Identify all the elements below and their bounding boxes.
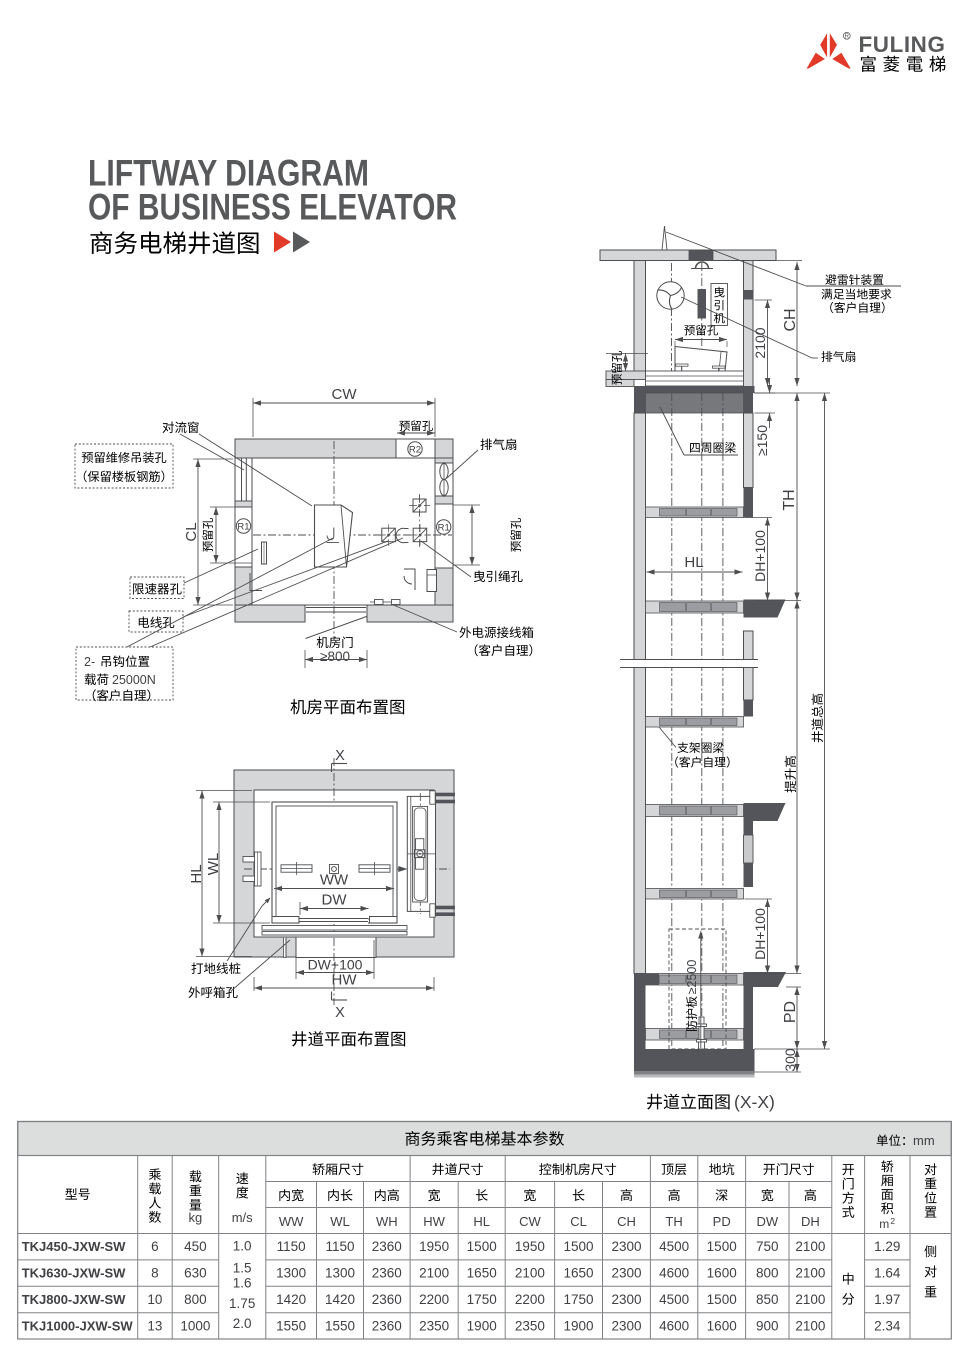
svg-text:300: 300 bbox=[782, 1048, 798, 1072]
svg-text:HL: HL bbox=[473, 1214, 490, 1229]
svg-text:≥2500: ≥2500 bbox=[685, 960, 699, 995]
svg-text:1.97: 1.97 bbox=[874, 1292, 900, 1307]
svg-text:2360: 2360 bbox=[372, 1292, 402, 1307]
svg-text:1500: 1500 bbox=[467, 1239, 497, 1254]
svg-text:850: 850 bbox=[756, 1292, 779, 1307]
svg-text:1150: 1150 bbox=[277, 1239, 306, 1254]
svg-text:10: 10 bbox=[147, 1292, 162, 1307]
svg-text:1500: 1500 bbox=[707, 1239, 737, 1254]
svg-text:WL: WL bbox=[330, 1214, 350, 1229]
svg-text:(X-X): (X-X) bbox=[734, 1092, 775, 1112]
svg-text:HW: HW bbox=[423, 1214, 445, 1229]
svg-text:1550: 1550 bbox=[276, 1318, 306, 1333]
svg-text:6: 6 bbox=[151, 1239, 159, 1254]
svg-text:CL: CL bbox=[570, 1214, 587, 1229]
svg-text:1550: 1550 bbox=[325, 1318, 355, 1333]
svg-text:1.75: 1.75 bbox=[229, 1296, 255, 1311]
svg-text:WW: WW bbox=[320, 872, 349, 889]
svg-text:X: X bbox=[335, 1005, 345, 1021]
svg-text:2100: 2100 bbox=[795, 1318, 825, 1333]
svg-text:1300: 1300 bbox=[325, 1266, 355, 1281]
svg-text:2300: 2300 bbox=[611, 1266, 641, 1281]
svg-text:FULING: FULING bbox=[859, 32, 946, 57]
svg-text:kg: kg bbox=[189, 1210, 203, 1225]
svg-text:450: 450 bbox=[184, 1239, 207, 1254]
svg-text:2300: 2300 bbox=[611, 1318, 641, 1333]
svg-text:2360: 2360 bbox=[372, 1239, 402, 1254]
svg-text:1420: 1420 bbox=[325, 1292, 355, 1307]
svg-text:4500: 4500 bbox=[659, 1292, 689, 1307]
svg-text:2100: 2100 bbox=[419, 1266, 449, 1281]
svg-text:DH: DH bbox=[801, 1214, 820, 1229]
svg-text:1.29: 1.29 bbox=[874, 1239, 900, 1254]
svg-text:8: 8 bbox=[151, 1266, 159, 1281]
svg-text:1750: 1750 bbox=[467, 1292, 497, 1307]
svg-text:13: 13 bbox=[147, 1318, 162, 1333]
svg-text:DH+100: DH+100 bbox=[752, 908, 768, 960]
svg-text:750: 750 bbox=[756, 1239, 779, 1254]
svg-text:1950: 1950 bbox=[515, 1239, 545, 1254]
svg-text:1.5: 1.5 bbox=[233, 1261, 252, 1276]
svg-text:2350: 2350 bbox=[515, 1318, 545, 1333]
svg-text:2.0: 2.0 bbox=[233, 1316, 252, 1331]
svg-text:1500: 1500 bbox=[707, 1292, 737, 1307]
svg-text:1.6: 1.6 bbox=[233, 1276, 252, 1291]
svg-text:R1: R1 bbox=[237, 522, 249, 533]
svg-text:1000: 1000 bbox=[180, 1318, 210, 1333]
svg-text:4600: 4600 bbox=[659, 1318, 689, 1333]
svg-text:DW+100: DW+100 bbox=[308, 957, 363, 973]
svg-text:CH: CH bbox=[617, 1214, 636, 1229]
svg-text:TKJ800-JXW-SW: TKJ800-JXW-SW bbox=[22, 1292, 126, 1307]
svg-text:CH: CH bbox=[782, 308, 799, 331]
svg-text:CL: CL bbox=[183, 522, 200, 541]
svg-text:1600: 1600 bbox=[707, 1318, 737, 1333]
svg-text:1600: 1600 bbox=[707, 1266, 737, 1281]
svg-text:PD: PD bbox=[782, 1001, 799, 1023]
svg-text:800: 800 bbox=[756, 1266, 779, 1281]
svg-text:TKJ630-JXW-SW: TKJ630-JXW-SW bbox=[22, 1266, 126, 1281]
svg-text:CW: CW bbox=[519, 1214, 541, 1229]
svg-text:1300: 1300 bbox=[276, 1266, 306, 1281]
svg-text:1420: 1420 bbox=[276, 1292, 306, 1307]
svg-text:WH: WH bbox=[376, 1214, 398, 1229]
svg-text:1900: 1900 bbox=[467, 1318, 497, 1333]
svg-text:2100: 2100 bbox=[795, 1292, 825, 1307]
svg-text:900: 900 bbox=[756, 1318, 779, 1333]
svg-text:1900: 1900 bbox=[563, 1318, 593, 1333]
svg-text:2200: 2200 bbox=[419, 1292, 449, 1307]
svg-text:4500: 4500 bbox=[659, 1239, 689, 1254]
svg-text:2: 2 bbox=[890, 1216, 895, 1226]
svg-text:WW: WW bbox=[279, 1214, 304, 1229]
svg-text:HL: HL bbox=[684, 554, 703, 571]
svg-text:HW: HW bbox=[332, 972, 358, 989]
svg-text:1650: 1650 bbox=[467, 1266, 497, 1281]
svg-text:TH: TH bbox=[781, 489, 798, 510]
svg-text:2100: 2100 bbox=[795, 1266, 825, 1281]
svg-text:DH+100: DH+100 bbox=[752, 530, 768, 582]
svg-text:2360: 2360 bbox=[372, 1266, 402, 1281]
svg-text:R: R bbox=[845, 34, 850, 40]
svg-text:TH: TH bbox=[665, 1214, 682, 1229]
svg-text:2-: 2- bbox=[84, 655, 95, 669]
svg-text:1650: 1650 bbox=[563, 1266, 593, 1281]
svg-text:1.64: 1.64 bbox=[874, 1266, 901, 1281]
svg-text:2100: 2100 bbox=[795, 1239, 825, 1254]
svg-text:2100: 2100 bbox=[752, 327, 768, 358]
svg-text:2100: 2100 bbox=[515, 1266, 545, 1281]
svg-text:1750: 1750 bbox=[563, 1292, 593, 1307]
svg-text:m/s: m/s bbox=[232, 1210, 253, 1225]
svg-text:2.34: 2.34 bbox=[874, 1318, 901, 1333]
svg-text:DW: DW bbox=[322, 892, 348, 909]
svg-text:25000N: 25000N bbox=[112, 673, 156, 687]
svg-text:m: m bbox=[879, 1217, 889, 1231]
svg-text:2350: 2350 bbox=[419, 1318, 449, 1333]
svg-text:R2: R2 bbox=[409, 445, 421, 456]
svg-text:2300: 2300 bbox=[611, 1239, 641, 1254]
svg-text:2300: 2300 bbox=[611, 1292, 641, 1307]
svg-text:DW: DW bbox=[756, 1214, 778, 1229]
svg-text:2360: 2360 bbox=[372, 1318, 402, 1333]
svg-text:mm: mm bbox=[913, 1133, 935, 1148]
svg-text:≥800: ≥800 bbox=[320, 649, 350, 664]
svg-text:1150: 1150 bbox=[325, 1239, 354, 1254]
svg-text:1500: 1500 bbox=[563, 1239, 593, 1254]
svg-text:WL: WL bbox=[205, 853, 222, 876]
svg-text:≥150: ≥150 bbox=[754, 425, 770, 456]
svg-text:CW: CW bbox=[332, 386, 358, 403]
svg-text:800: 800 bbox=[184, 1292, 207, 1307]
svg-text:630: 630 bbox=[184, 1266, 207, 1281]
svg-text:HL: HL bbox=[188, 864, 205, 883]
svg-text:1.0: 1.0 bbox=[233, 1239, 252, 1254]
svg-text:TKJ450-JXW-SW: TKJ450-JXW-SW bbox=[22, 1239, 126, 1254]
svg-text:4600: 4600 bbox=[659, 1266, 689, 1281]
svg-text:TKJ1000-JXW-SW: TKJ1000-JXW-SW bbox=[22, 1318, 134, 1333]
svg-text:1950: 1950 bbox=[419, 1239, 449, 1254]
svg-text:X: X bbox=[335, 748, 345, 764]
svg-text:OF BUSINESS ELEVATOR: OF BUSINESS ELEVATOR bbox=[88, 186, 457, 228]
svg-text:2200: 2200 bbox=[515, 1292, 545, 1307]
svg-text:PD: PD bbox=[713, 1214, 731, 1229]
svg-text:R1: R1 bbox=[438, 523, 450, 534]
